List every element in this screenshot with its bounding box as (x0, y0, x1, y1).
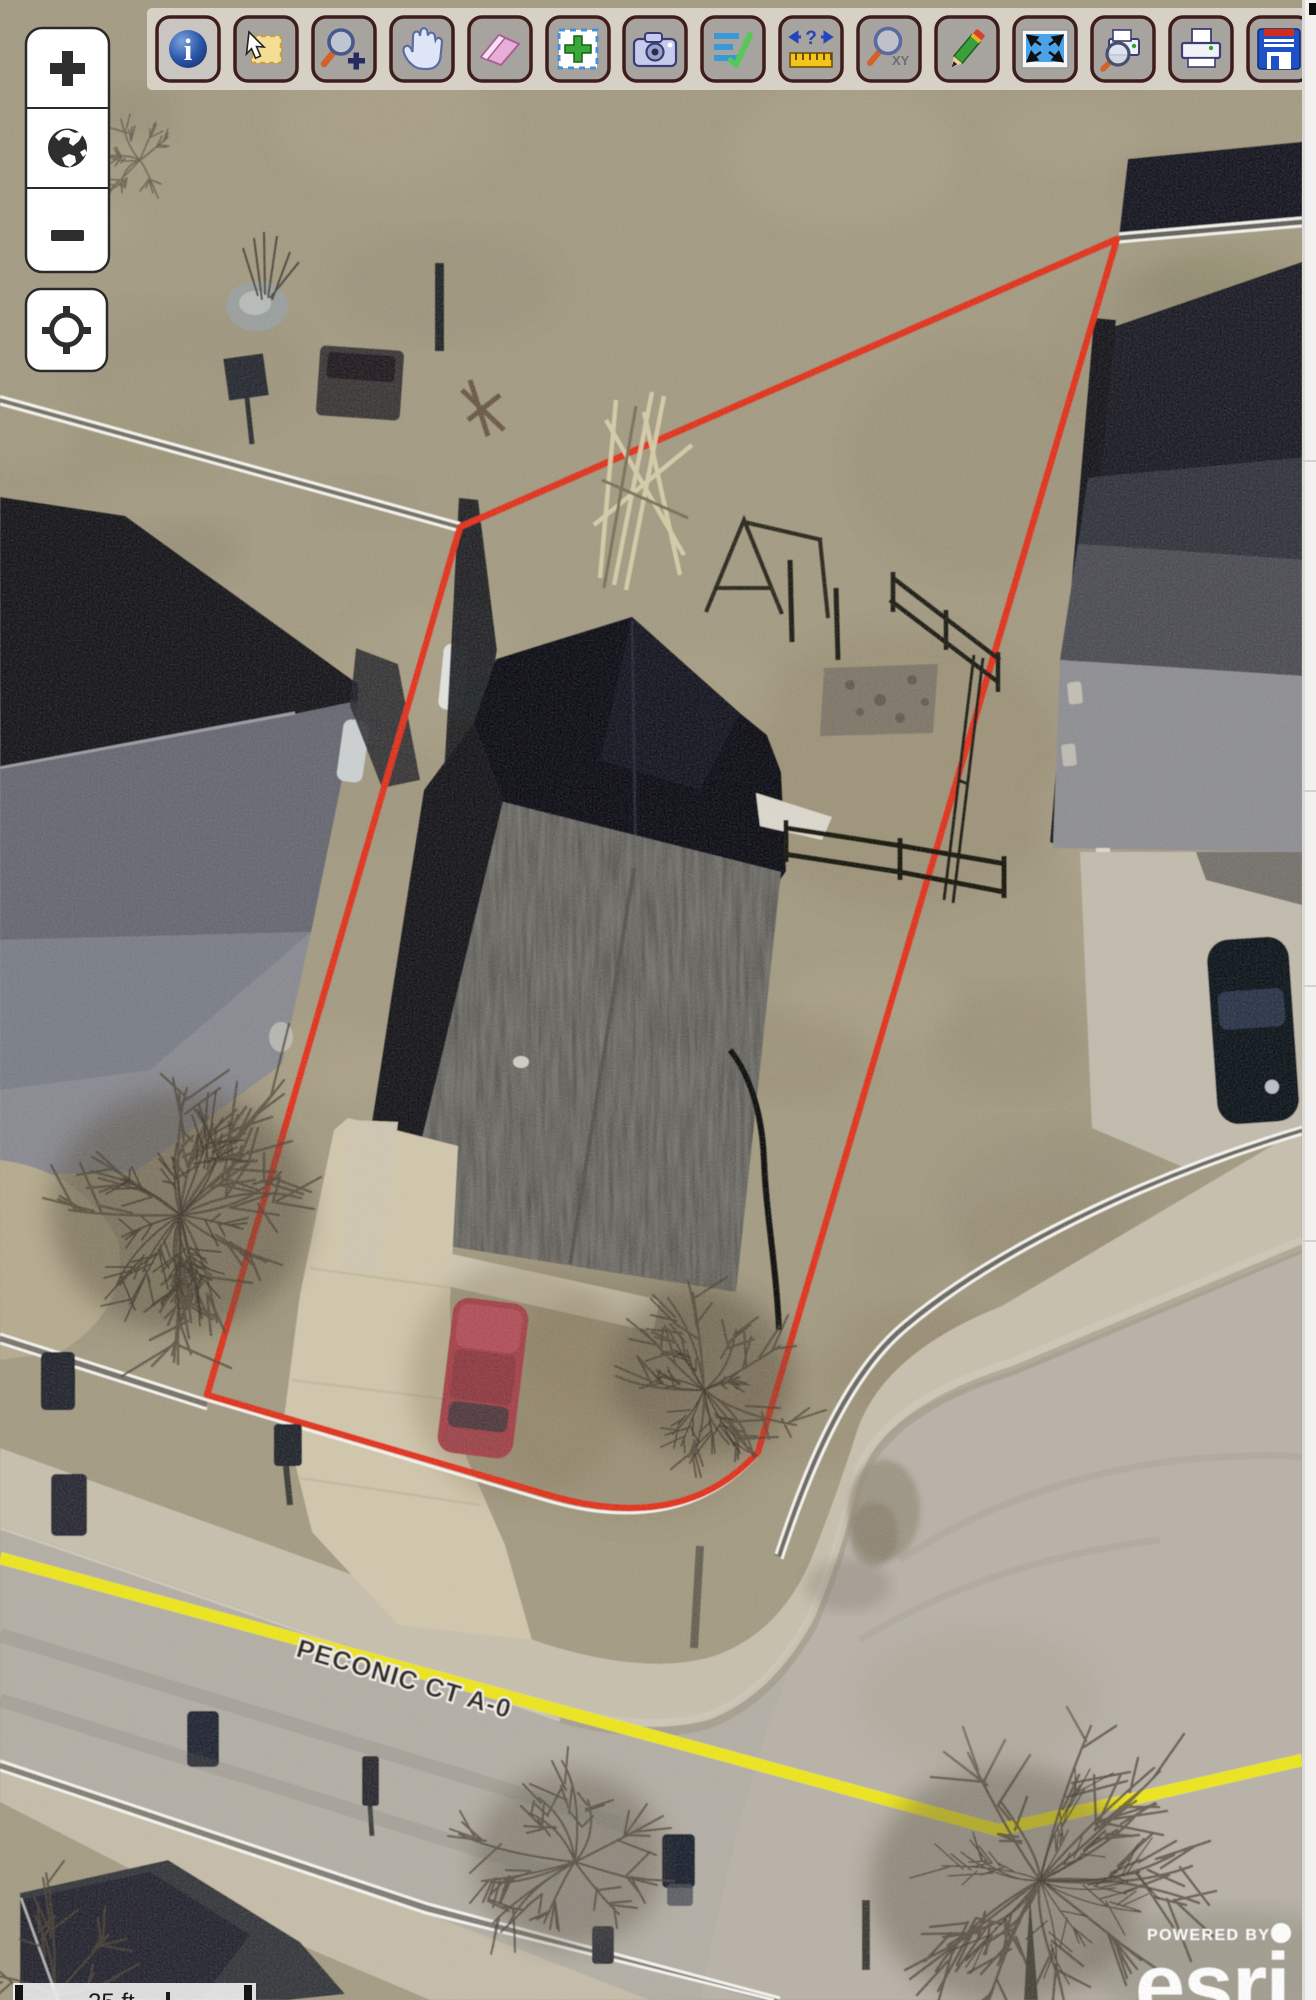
svg-text:XY: XY (892, 53, 910, 68)
svg-text:?: ? (805, 28, 817, 49)
svg-text:i: i (184, 32, 193, 67)
svg-text:25 ft: 25 ft (88, 1989, 135, 2000)
